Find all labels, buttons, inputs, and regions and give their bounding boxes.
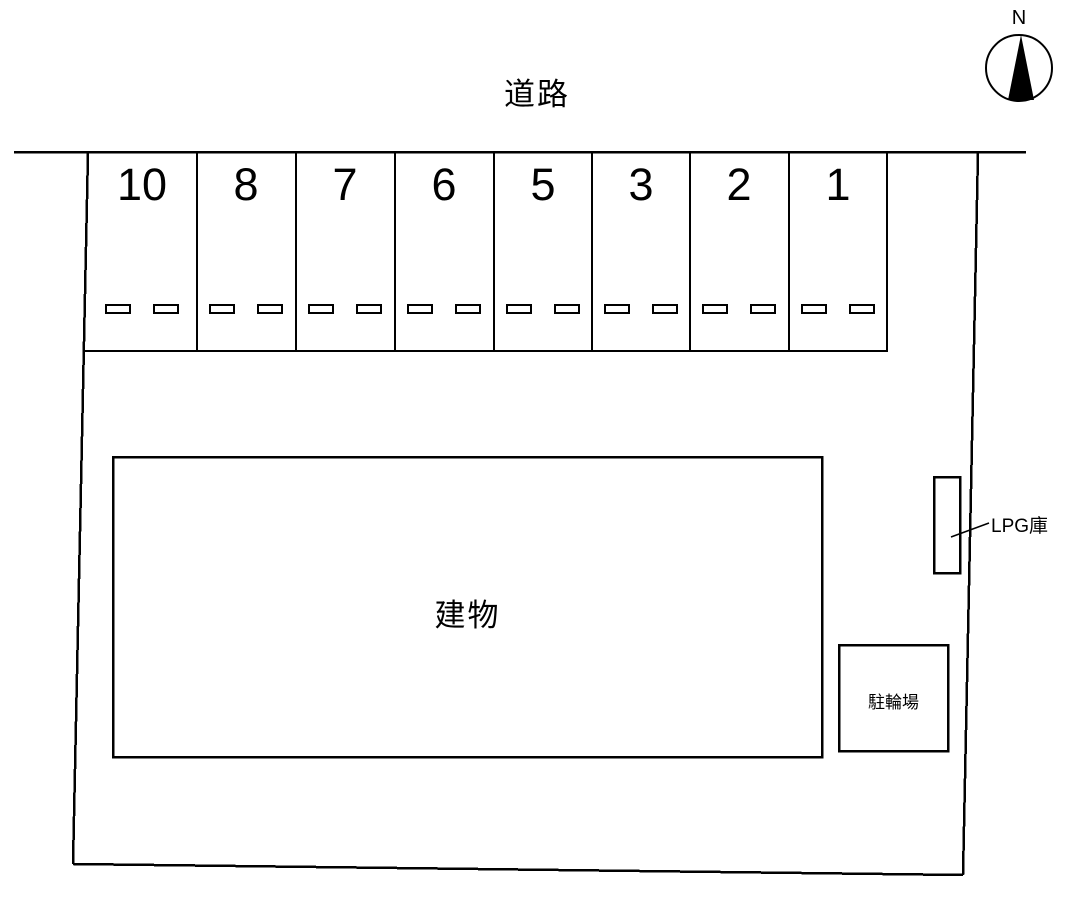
site-boundary-bottom [73,864,963,875]
lpg-storage-outline [934,477,960,573]
wheel-stop-marker [408,305,432,313]
bicycle-parking-label: 駐輪場 [839,688,948,713]
wheel-stop-marker [555,305,579,313]
parking-space-number: 5 [498,161,588,209]
site-plan-drawing [0,0,1079,903]
wheel-stop-marker [309,305,333,313]
wheel-stop-marker [154,305,178,313]
parking-space-number: 8 [201,161,291,209]
wheel-stop-marker [703,305,727,313]
compass-north-icon [986,35,1052,101]
site-boundary-right [963,152,978,875]
lpg-storage-label: LPG庫 [991,511,1048,538]
parking-space-number: 7 [300,161,390,209]
wheel-stop-marker [106,305,130,313]
site-boundary-left [73,152,88,864]
wheel-stop-marker [751,305,775,313]
site-plan-diagram: 道路 N 10 8 7 6 5 3 2 1 建物 LPG庫 駐輪場 [0,0,1079,903]
wheel-stop-marker [653,305,677,313]
wheel-stop-marker [258,305,282,313]
parking-space-number: 6 [399,161,489,209]
wheel-stop-marker [357,305,381,313]
building-label: 建物 [113,590,822,635]
wheel-stop-markers [106,305,874,313]
wheel-stop-marker [210,305,234,313]
parking-space-number: 1 [793,161,883,209]
parking-space-number: 3 [596,161,686,209]
compass-needle-icon [1008,35,1034,100]
road-label: 道路 [457,69,617,114]
parking-space-number: 10 [97,161,187,209]
compass-north-label: N [999,7,1039,30]
wheel-stop-marker [507,305,531,313]
wheel-stop-marker [850,305,874,313]
parking-space-number: 2 [694,161,784,209]
wheel-stop-marker [605,305,629,313]
wheel-stop-marker [802,305,826,313]
wheel-stop-marker [456,305,480,313]
